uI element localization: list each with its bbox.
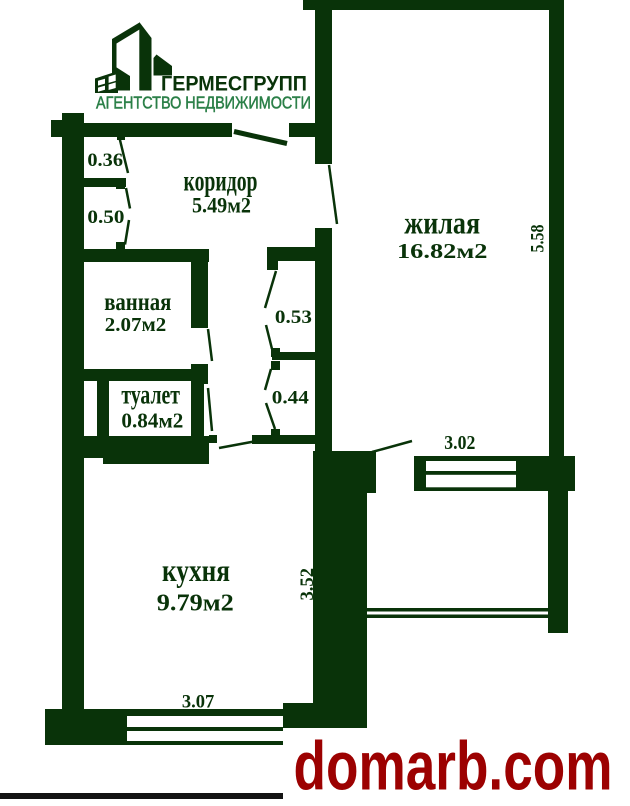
svg-text:domarb.com: domarb.com xyxy=(294,727,613,804)
svg-text:16.82м2: 16.82м2 xyxy=(397,239,488,263)
svg-text:0.84м2: 0.84м2 xyxy=(121,408,183,432)
svg-text:0.36: 0.36 xyxy=(87,150,123,171)
svg-text:кухня: кухня xyxy=(162,552,230,588)
svg-text:туалет: туалет xyxy=(121,380,180,410)
svg-text:ванная: ванная xyxy=(104,287,171,316)
svg-text:5.58: 5.58 xyxy=(528,225,549,253)
svg-text:3.52: 3.52 xyxy=(297,568,318,601)
svg-text:5.49м2: 5.49м2 xyxy=(192,193,251,218)
svg-text:АГЕНТСТВО НЕДВИЖИМОСТИ: АГЕНТСТВО НЕДВИЖИМОСТИ xyxy=(96,93,311,113)
svg-text:3.07: 3.07 xyxy=(182,692,215,713)
svg-text:2.07м2: 2.07м2 xyxy=(105,315,167,336)
svg-text:0.44: 0.44 xyxy=(272,388,310,409)
svg-text:0.50: 0.50 xyxy=(87,207,124,228)
svg-text:3.02: 3.02 xyxy=(444,432,475,454)
svg-text:9.79м2: 9.79м2 xyxy=(157,590,234,617)
svg-text:жилая: жилая xyxy=(404,204,480,240)
svg-text:0.53: 0.53 xyxy=(275,307,312,328)
